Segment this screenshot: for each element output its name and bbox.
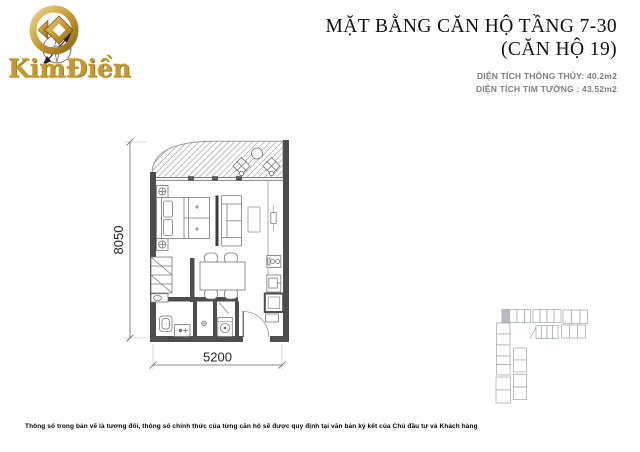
bathroom-door-leaf xyxy=(219,303,229,314)
counter-cabinet xyxy=(266,314,279,322)
balcony-table xyxy=(252,148,263,159)
tv-panel xyxy=(216,196,219,247)
bedroom-furniture xyxy=(157,186,210,251)
sink xyxy=(267,275,281,292)
stove xyxy=(267,256,281,268)
page-subtitle: (CĂN HỘ 19) xyxy=(326,38,618,61)
dining-chair xyxy=(225,289,238,299)
washing-machine xyxy=(218,318,233,337)
height-dimension-label: 8050 xyxy=(111,226,126,255)
disclaimer-text: Thông số trong bản vẽ là tương đối, thôn… xyxy=(25,423,615,430)
area-info: DIỆN TÍCH THÔNG THỦY: 40.2m2 DIỆN TÍCH T… xyxy=(326,70,618,96)
brand-logo: KimĐiền xyxy=(8,2,128,97)
fridge xyxy=(265,294,283,313)
key-plan xyxy=(490,300,600,410)
bed xyxy=(157,198,210,239)
entrance-door xyxy=(243,311,269,337)
balcony xyxy=(152,141,283,177)
coffee-table xyxy=(248,207,260,232)
living-room-furniture xyxy=(216,196,261,247)
keyplan-highlighted-unit xyxy=(502,310,510,323)
gross-area-label: DIỆN TÍCH TIM TƯỜNG : 43.52m2 xyxy=(326,83,618,96)
shower-drain xyxy=(201,321,207,327)
kitchen-sink-faucet xyxy=(271,213,276,224)
floor-plan-sheet: KimĐiền MẶT BẰNG CĂN HỘ TẦNG 7-30 (CĂN H… xyxy=(0,0,640,452)
floor-plan-drawing: 8050 5200 xyxy=(100,125,310,385)
wardrobe xyxy=(151,257,172,302)
dining-chair xyxy=(225,253,238,263)
brand-logo-text: KimĐiền xyxy=(8,54,128,83)
dining-chair xyxy=(205,289,218,299)
toilet xyxy=(160,316,173,332)
sofa xyxy=(222,196,242,247)
kitchen xyxy=(265,180,283,322)
dining-table xyxy=(200,262,245,290)
dining-set xyxy=(200,253,245,299)
dining-chair xyxy=(205,253,218,263)
net-area-label: DIỆN TÍCH THÔNG THỦY: 40.2m2 xyxy=(326,70,618,83)
keyplan-units xyxy=(496,310,588,404)
width-dimension-label: 5200 xyxy=(203,350,232,365)
gold-ring-icon xyxy=(33,9,75,51)
vanity-sink xyxy=(175,325,191,337)
header: MẶT BẰNG CĂN HỘ TẦNG 7-30 (CĂN HỘ 19) DI… xyxy=(326,15,618,96)
page-title: MẶT BẰNG CĂN HỘ TẦNG 7-30 xyxy=(326,15,618,38)
